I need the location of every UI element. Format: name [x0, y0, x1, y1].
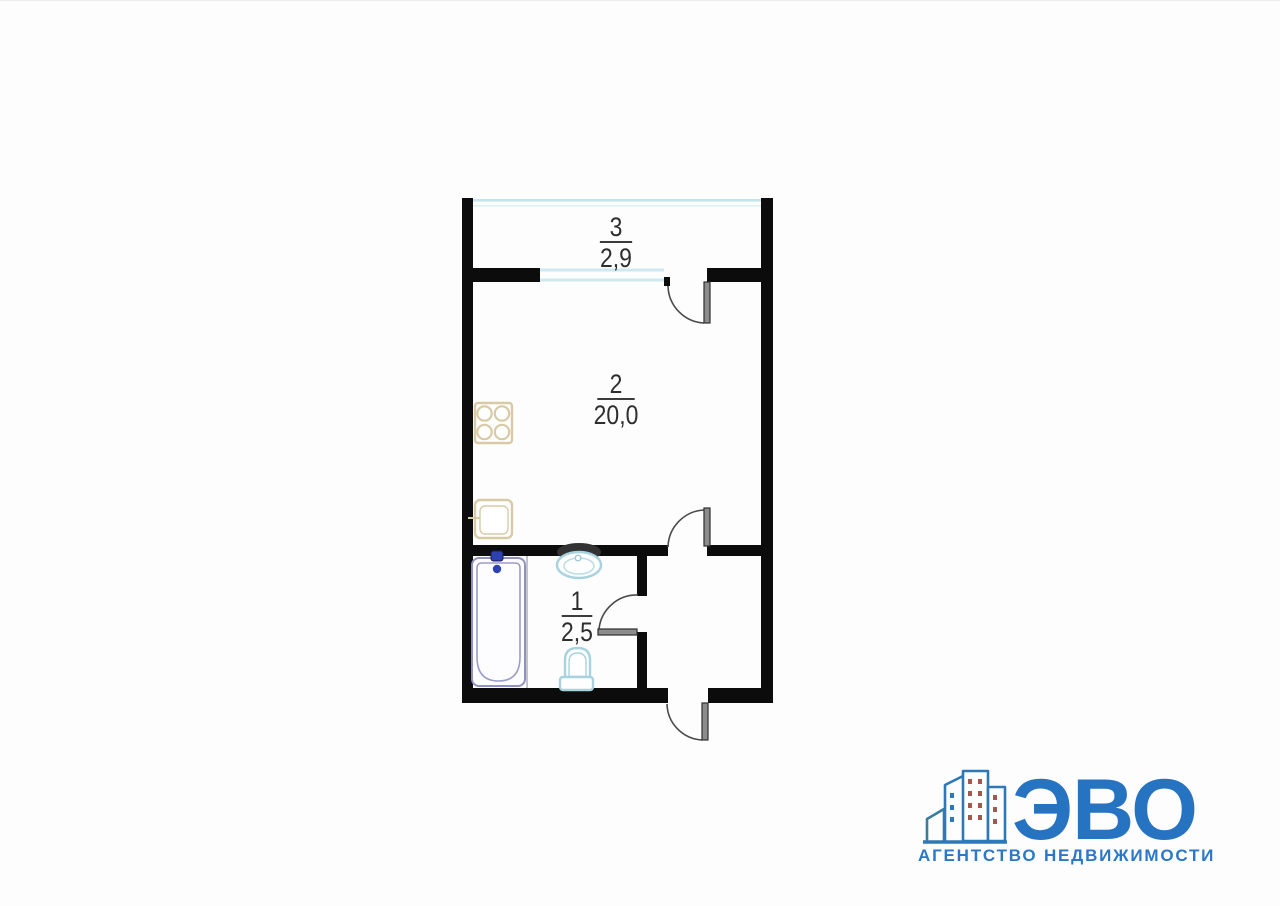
- bathtub-icon: [472, 558, 525, 686]
- entrance-door-icon: [667, 703, 708, 740]
- wall-hall-top-right: [707, 545, 761, 556]
- room-area: 20,0: [582, 402, 650, 428]
- wall-balcony-left: [462, 268, 540, 282]
- kitchen-sink-icon: [468, 500, 512, 538]
- wall-bath-right-upper: [637, 556, 647, 596]
- wall-bath-right-lower: [637, 632, 647, 688]
- room-number: 2: [582, 371, 650, 397]
- room-number: 3: [582, 214, 650, 240]
- room-number: 1: [543, 588, 611, 614]
- brand-text: ЭВО: [1012, 770, 1197, 850]
- toilet-icon: [560, 648, 593, 690]
- room-area: 2,5: [543, 619, 611, 645]
- wall-right: [761, 198, 773, 703]
- room-label-3: 3 2,9: [582, 214, 650, 271]
- room-door-icon: [668, 508, 710, 547]
- balcony-glazing: [473, 199, 761, 207]
- bath-sink-icon: [557, 543, 601, 578]
- stove-icon: [475, 403, 512, 443]
- buildings-icon: [920, 765, 1010, 845]
- room-area: 2,9: [582, 245, 650, 271]
- wall-bottom-right: [708, 688, 773, 703]
- balcony-door-jamb: [664, 277, 670, 286]
- room-label-1: 1 2,5: [543, 588, 611, 645]
- room-label-2: 2 20,0: [582, 371, 650, 428]
- balcony-door-icon: [668, 282, 710, 323]
- wall-balcony-right: [707, 268, 761, 282]
- tagline-text: АГЕНТСТВО НЕДВИЖИМОСТИ: [918, 846, 1215, 866]
